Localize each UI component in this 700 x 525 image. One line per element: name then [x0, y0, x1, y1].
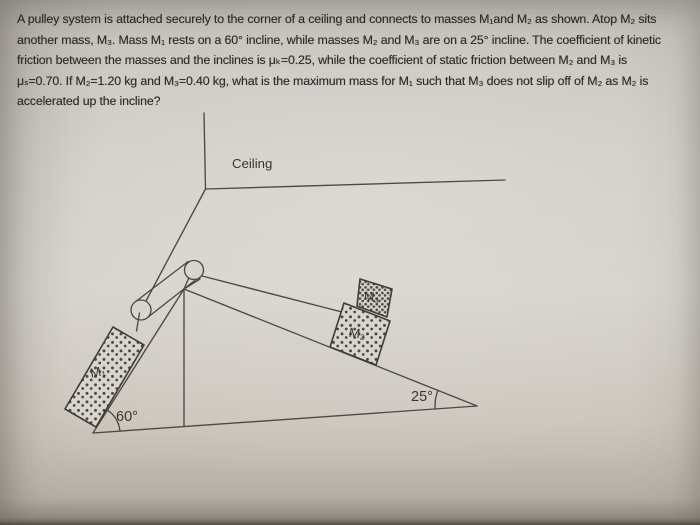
photo-background: A pulley system is attached securely to … — [0, 0, 700, 525]
pulley-support-line — [146, 189, 206, 301]
rope-to-m2-line — [202, 276, 342, 312]
label-angle-25: 25° — [411, 389, 433, 405]
ceiling-label: Ceiling — [232, 156, 272, 171]
upper-pulley-wheel — [185, 261, 204, 280]
lower-pulley-wheel — [131, 300, 151, 320]
triangle-base-line — [93, 406, 477, 433]
ceiling-vertical-line — [204, 113, 206, 189]
label-angle-60: 60° — [116, 409, 138, 425]
physics-diagram: Ceiling 60° 25° M₁ M₂ M₃ — [0, 0, 700, 525]
photo-edge-shadow — [0, 518, 700, 525]
label-m2: M₂ — [348, 325, 366, 342]
label-m3: M₃ — [363, 289, 380, 305]
angle-25-arc — [435, 390, 438, 409]
ceiling-horizontal-line — [206, 180, 506, 189]
